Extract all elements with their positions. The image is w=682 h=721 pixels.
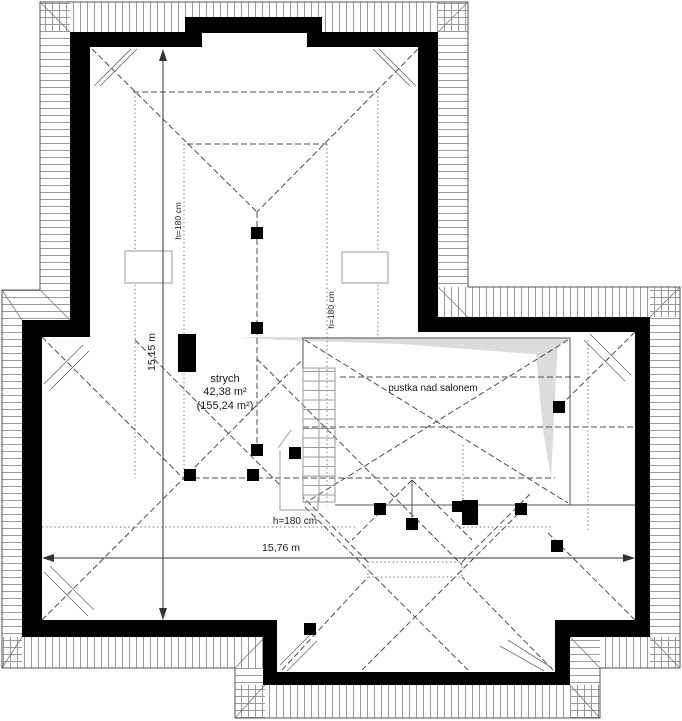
- overhang-band-left-main: [2, 290, 22, 668]
- height-label-left: h=180 cm: [173, 202, 183, 240]
- height-label-center: h=180 cm: [326, 291, 336, 329]
- overhang-band-projection-left: [235, 668, 265, 718]
- room-name-label: strych: [210, 373, 239, 385]
- overhang-band-right-upper: [438, 2, 468, 287]
- height-label-bottom: h=180 cm: [273, 516, 317, 527]
- room-area-label: 42,38 m²: [203, 386, 247, 398]
- overhang-band-right-main: [650, 287, 680, 668]
- overhang-band-projection-right: [570, 637, 600, 718]
- void-label: pustka nad salonem: [388, 383, 478, 394]
- roof-window-left: [125, 251, 172, 283]
- overhang-band-projection-bottom: [235, 685, 600, 718]
- room-area-total-label: (155,24 m²): [197, 400, 254, 412]
- floor-plan-svg: strych 42,38 m² (155,24 m²) pustka nad s…: [0, 0, 682, 721]
- chimney: [178, 334, 196, 372]
- roof-window-right: [342, 252, 388, 283]
- dimension-label-vertical: 15,15 m: [146, 333, 158, 371]
- overhang-band-bottom-left: [2, 637, 265, 668]
- floor-plan-page: strych 42,38 m² (155,24 m²) pustka nad s…: [0, 0, 682, 721]
- overhang-band-left-upper: [40, 2, 70, 320]
- dimension-label-horizontal: 15,76 m: [262, 542, 300, 554]
- overhang-band-upper-right-step: [438, 287, 680, 317]
